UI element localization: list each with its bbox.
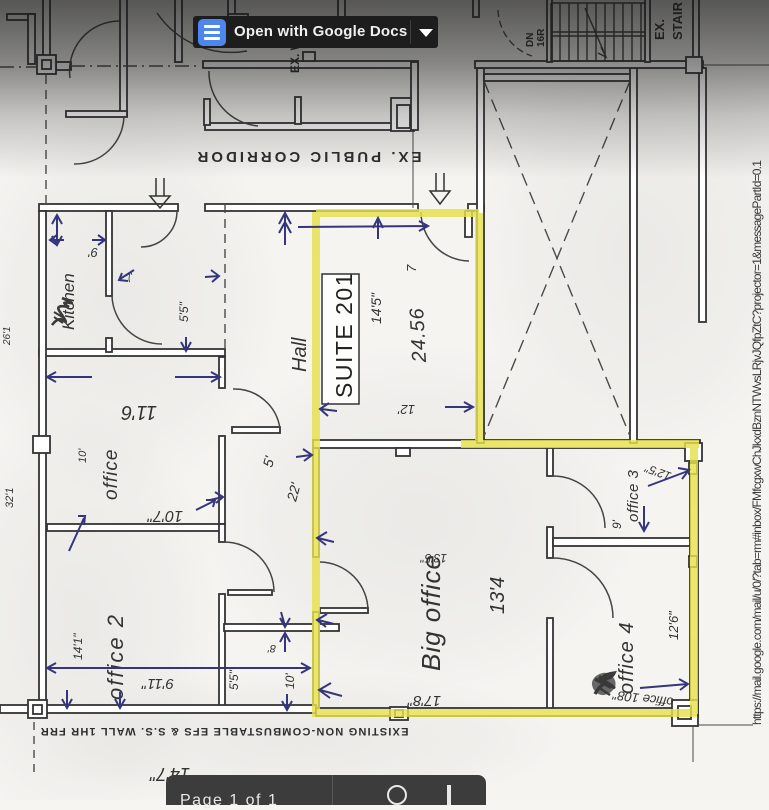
svg-text:13'5": 13'5" [420, 551, 447, 565]
svg-text:5'5": 5'5" [227, 669, 241, 690]
svg-text:13'4: 13'4 [487, 577, 509, 614]
svg-text:8': 8' [267, 642, 276, 654]
svg-text:10': 10' [283, 673, 297, 689]
svg-text:10'7": 10'7" [146, 507, 183, 524]
svg-text:5'5": 5'5" [177, 301, 191, 322]
svg-text:12': 12' [398, 402, 415, 417]
svg-text:https://mail.google.com/mail/u: https://mail.google.com/mail/u/0/?tab=rm… [750, 160, 764, 725]
svg-text:32'1: 32'1 [4, 488, 16, 508]
svg-text:26'1: 26'1 [2, 326, 13, 346]
svg-text:10': 10' [77, 448, 89, 463]
svg-text:14'5": 14'5" [368, 292, 384, 324]
svg-text:office 4: office 4 [616, 622, 638, 694]
svg-text:14'1": 14'1" [71, 633, 85, 660]
svg-text:office: office [101, 449, 122, 500]
svg-text:SUITE 201: SUITE 201 [331, 272, 357, 398]
svg-text:9': 9' [88, 245, 98, 260]
svg-text:EXISTING NON-COMBUSTABLE EFS &: EXISTING NON-COMBUSTABLE EFS & S.S. WALL… [40, 725, 409, 737]
svg-text:office 2: office 2 [103, 613, 128, 700]
svg-text:24.56: 24.56 [406, 307, 431, 364]
svg-text:office 3: office 3 [625, 469, 642, 522]
svg-text:Big office: Big office [416, 554, 446, 671]
svg-text:11'6: 11'6 [120, 401, 157, 423]
svg-text:7: 7 [404, 264, 419, 272]
svg-text:9': 9' [610, 519, 624, 529]
svg-text:17'8": 17'8" [407, 692, 441, 709]
svg-text:9'11": 9'11" [141, 675, 174, 692]
svg-text:12'6": 12'6" [666, 610, 681, 640]
svg-text:Hall: Hall [289, 337, 311, 372]
